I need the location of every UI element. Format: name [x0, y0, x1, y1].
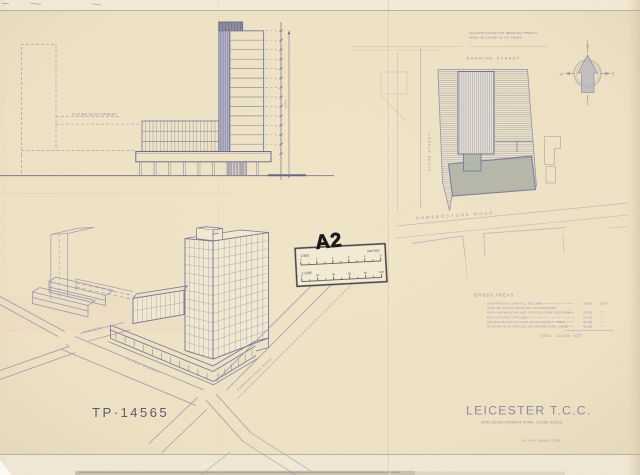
- svg-text:24,500: 24,500: [583, 315, 593, 319]
- svg-text:TP·14565: TP·14565: [92, 405, 169, 420]
- svg-text:EXTENSION TO OFFICES OR SHOWRO: EXTENSION TO OFFICES OR SHOWROOMS (SALE): [487, 325, 568, 329]
- svg-text:" ": " ": [600, 311, 603, 315]
- svg-text:CLYDE STREET: CLYDE STREET: [428, 133, 432, 171]
- svg-text:1:500: 1:500: [300, 254, 309, 258]
- svg-text:SQFT: SQFT: [600, 302, 608, 306]
- svg-text:GROUND FLOOR (EXISTING SHOWROO: GROUND FLOOR (EXISTING SHOWROOMS): [487, 306, 556, 310]
- svg-text:N: N: [586, 44, 589, 49]
- svg-text:LEICESTER T.C.C.: LEICESTER T.C.C.: [466, 404, 592, 418]
- svg-text:SHOWROOMS OVER ALL THE SITE: SHOWROOMS OVER ALL THE SITE: [487, 302, 543, 306]
- svg-text:M.S. PLAN DRAWN 8.3.1964: M.S. PLAN DRAWN 8.3.1964: [522, 439, 561, 443]
- svg-text:GROSS AREAS: GROSS AREAS: [474, 293, 514, 298]
- svg-text:E: E: [612, 71, 615, 76]
- svg-text:31,000: 31,000: [583, 311, 593, 315]
- svg-text:SECOND BLOCK (FUTURE DEVELOPME: SECOND BLOCK (FUTURE DEVELOPMENT AREA): [487, 320, 566, 324]
- svg-text:METRES: METRES: [367, 248, 380, 253]
- svg-text:" ": " ": [600, 320, 603, 324]
- svg-text:ERSKINE STREET: ERSKINE STREET: [467, 57, 521, 61]
- svg-text:W: W: [560, 71, 564, 76]
- svg-text:124-0: 124-0: [284, 100, 288, 108]
- svg-text:AREA INCLUDED IN 4-5 YEARS: AREA INCLUDED IN 4-5 YEARS: [469, 36, 522, 40]
- svg-text:26,250: 26,250: [583, 320, 593, 324]
- svg-text:" ": " ": [600, 315, 603, 319]
- svg-text:" ": " ": [600, 325, 603, 329]
- svg-text:30,000: 30,000: [583, 302, 593, 306]
- svg-text:SITE DEVELOPMENT PLAN 1/1250: SITE DEVELOPMENT PLAN 1/1250 SCALE: [481, 420, 563, 425]
- svg-text:A2: A2: [314, 229, 343, 254]
- svg-text:LEASIDE INCENTIVE REDEVELOPMEN: LEASIDE INCENTIVE REDEVELOPMENT: [469, 31, 537, 35]
- svg-text:S: S: [586, 101, 589, 106]
- svg-text:WITH SHOWROOMS AND OFFICES OVE: WITH SHOWROOMS AND OFFICES OVER (EXISTIN…: [487, 311, 572, 315]
- svg-text:1:1250: 1:1250: [301, 271, 312, 276]
- svg-text:MULTI STOREY OFFICES: MULTI STOREY OFFICES: [487, 315, 527, 319]
- svg-text:FUTURE DEVELOPMENT: FUTURE DEVELOPMENT: [72, 113, 117, 117]
- svg-text:TOTAL 134,500 SQFT: TOTAL 134,500 SQFT: [540, 334, 583, 338]
- svg-text:45,500: 45,500: [583, 325, 593, 329]
- svg-text:100: 100: [379, 270, 384, 274]
